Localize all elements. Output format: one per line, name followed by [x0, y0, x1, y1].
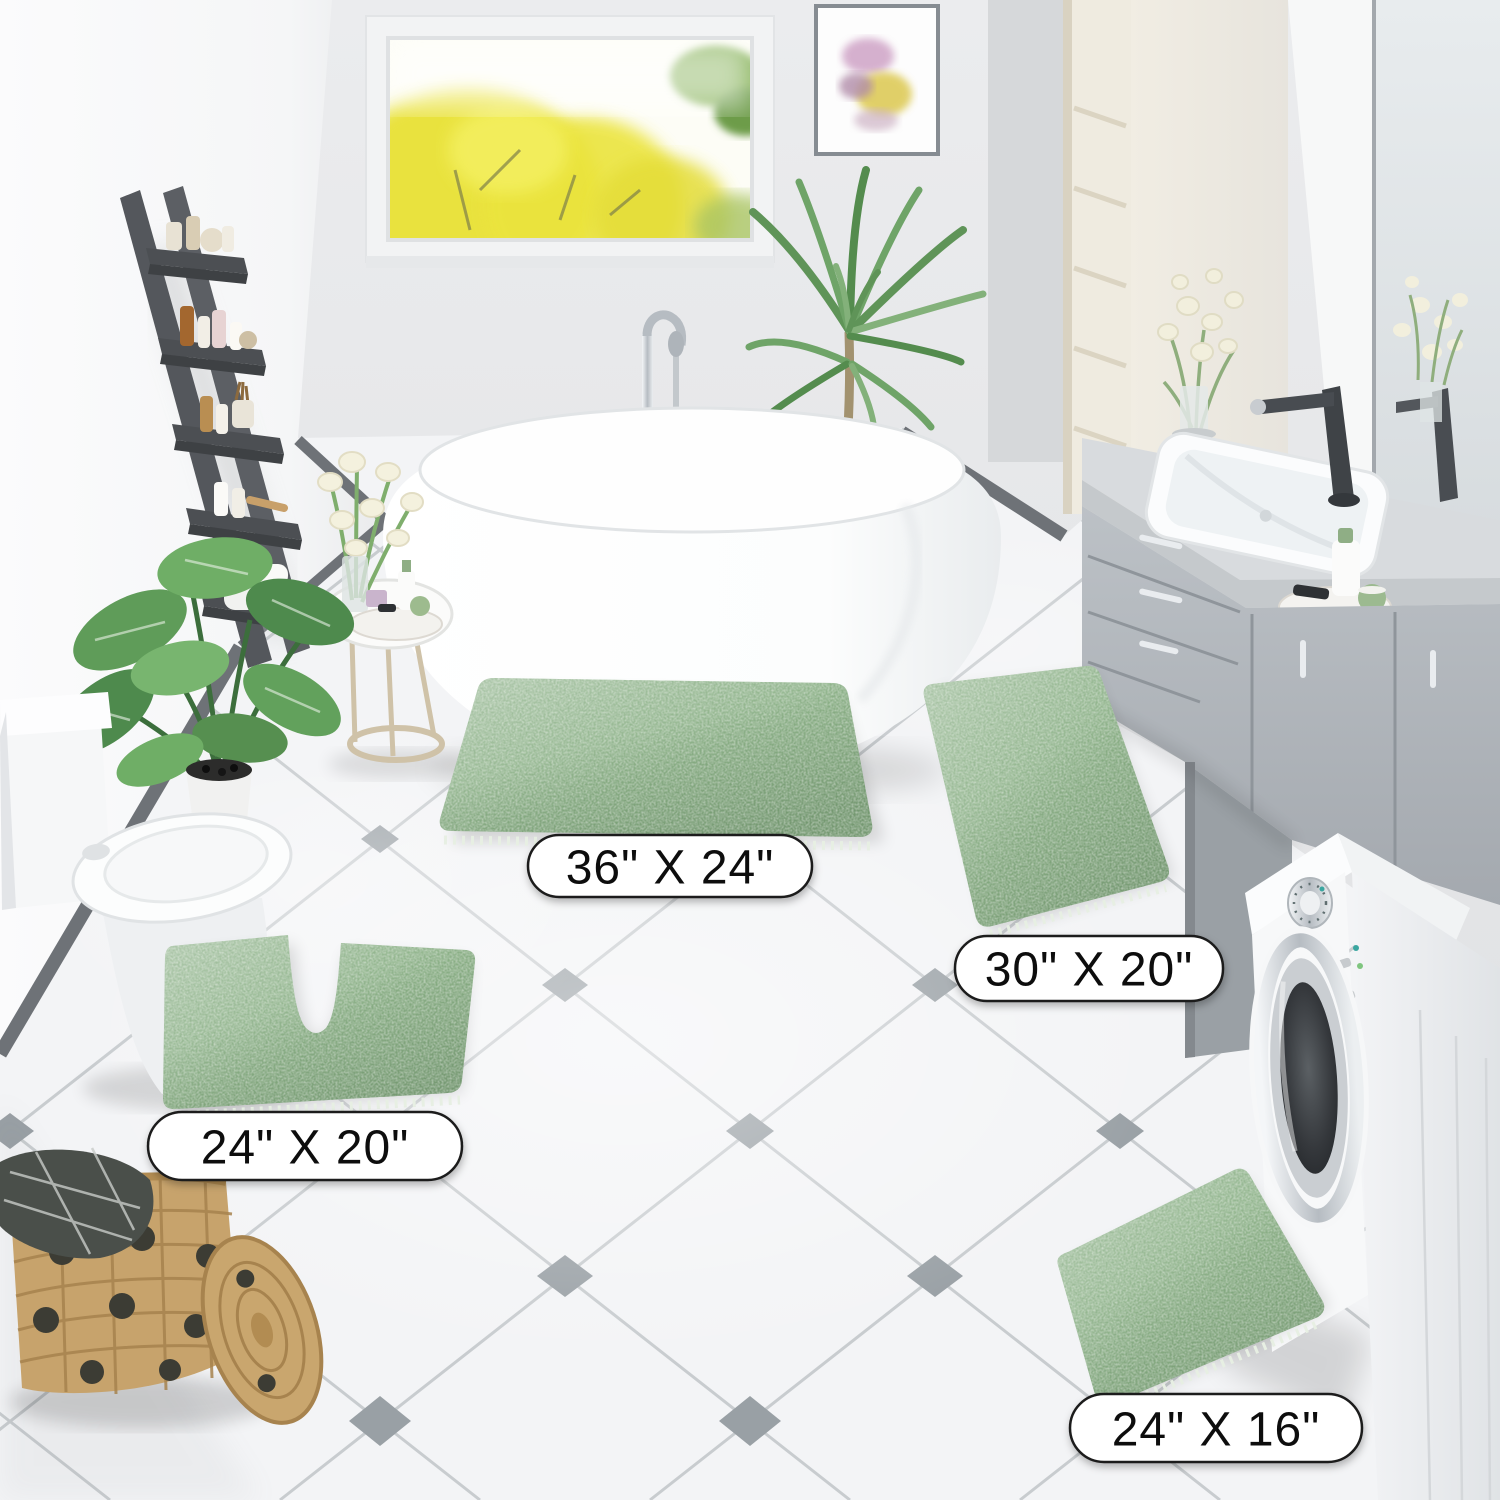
size-label-30x20: 30" X 20" [955, 936, 1223, 1001]
vanity-mirror [1374, 0, 1500, 560]
rug-36x24 [440, 678, 884, 846]
size-label-24x16: 24" X 16" [1070, 1394, 1362, 1462]
wall-art [816, 6, 938, 154]
window [336, 16, 782, 296]
washer-dial [1288, 878, 1332, 928]
glass-vase [342, 556, 368, 612]
bathroom-product-photo: 36" X 24" 30" X 20" 24" X 20" 24" X 16" [0, 0, 1500, 1500]
washer-side-panel [1352, 872, 1500, 1500]
scene-canvas: 36" X 24" 30" X 20" 24" X 20" 24" X 16" [0, 0, 1500, 1500]
label-text: 36" X 24" [566, 842, 775, 895]
label-text: 30" X 20" [985, 944, 1194, 997]
bathtub-rim [420, 408, 964, 532]
wall-recess-band [988, 0, 1064, 462]
size-label-24x20: 24" X 20" [148, 1112, 462, 1180]
size-label-36x24: 36" X 24" [528, 835, 812, 897]
counter-glass-vase [1180, 386, 1208, 434]
label-text: 24" X 20" [201, 1122, 410, 1175]
window-sill [366, 256, 774, 268]
label-text: 24" X 16" [1112, 1404, 1321, 1457]
